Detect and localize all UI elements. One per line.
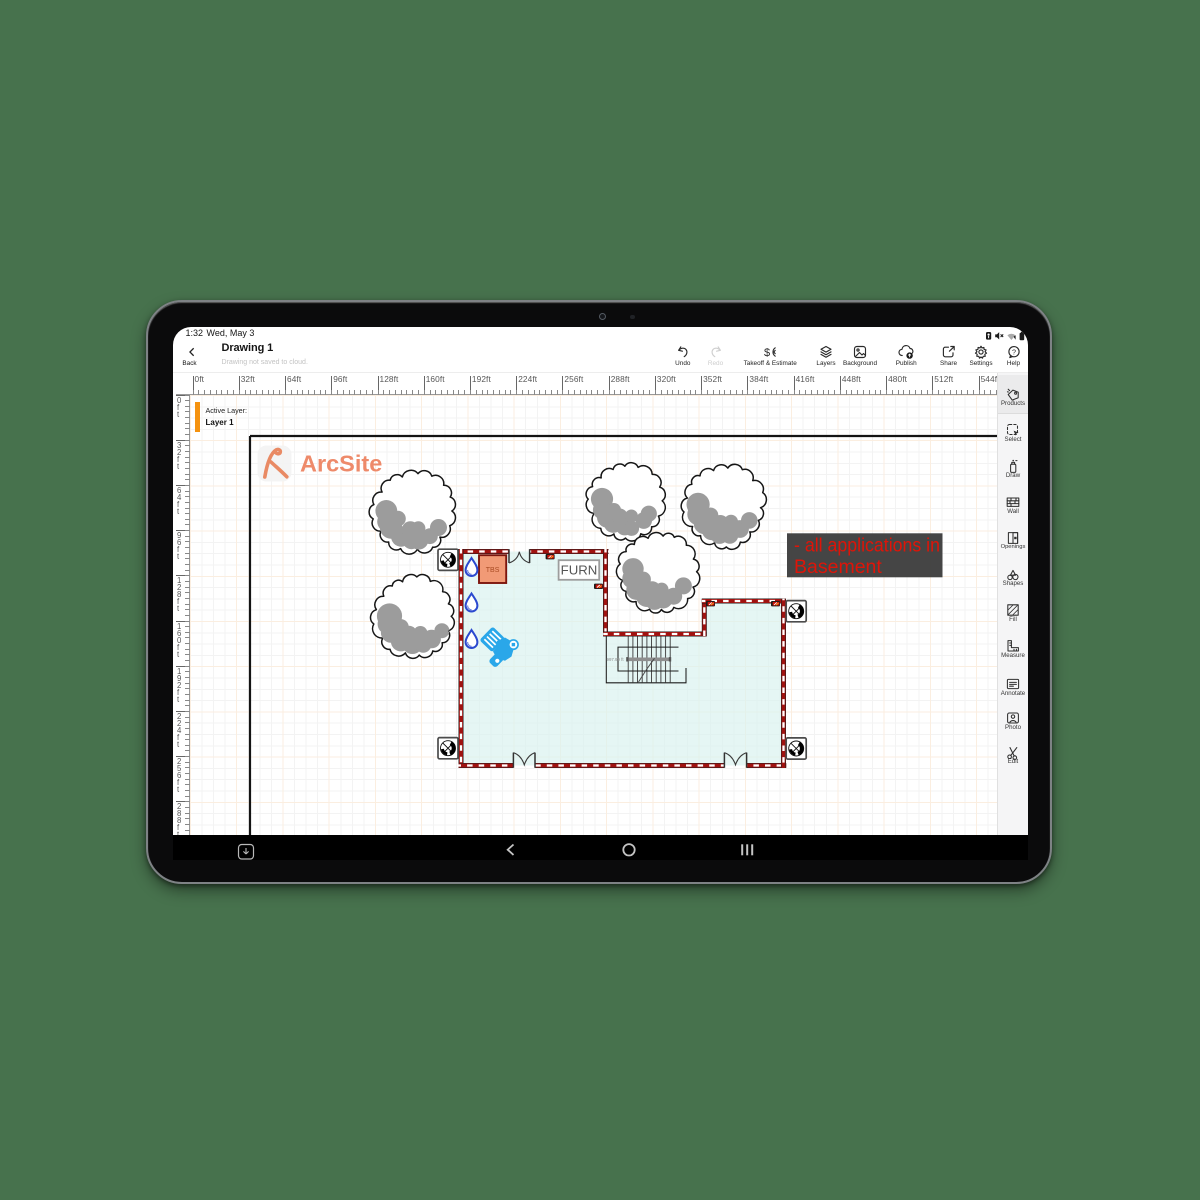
- svg-text:ArcSite: ArcSite: [300, 450, 382, 476]
- svg-text:- all applications in: - all applications in: [794, 534, 940, 556]
- svg-text:997.99 ft: 997.99 ft: [606, 657, 624, 662]
- svg-text:FURN: FURN: [560, 562, 597, 577]
- svg-text:Basement: Basement: [794, 556, 882, 578]
- svg-text:TBS: TBS: [485, 566, 499, 573]
